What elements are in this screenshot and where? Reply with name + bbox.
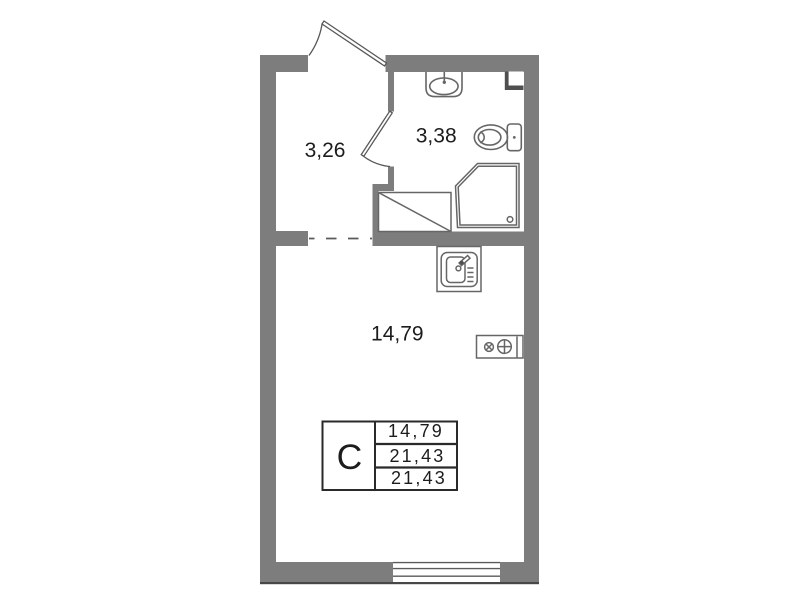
svg-text:21,43: 21,43 xyxy=(391,468,447,488)
svg-text:3,38: 3,38 xyxy=(416,125,457,148)
svg-text:14,79: 14,79 xyxy=(371,323,424,346)
svg-text:21,43: 21,43 xyxy=(389,446,445,466)
svg-text:C: C xyxy=(337,437,363,477)
svg-text:3,26: 3,26 xyxy=(305,139,346,162)
svg-text:14,79: 14,79 xyxy=(388,421,444,441)
